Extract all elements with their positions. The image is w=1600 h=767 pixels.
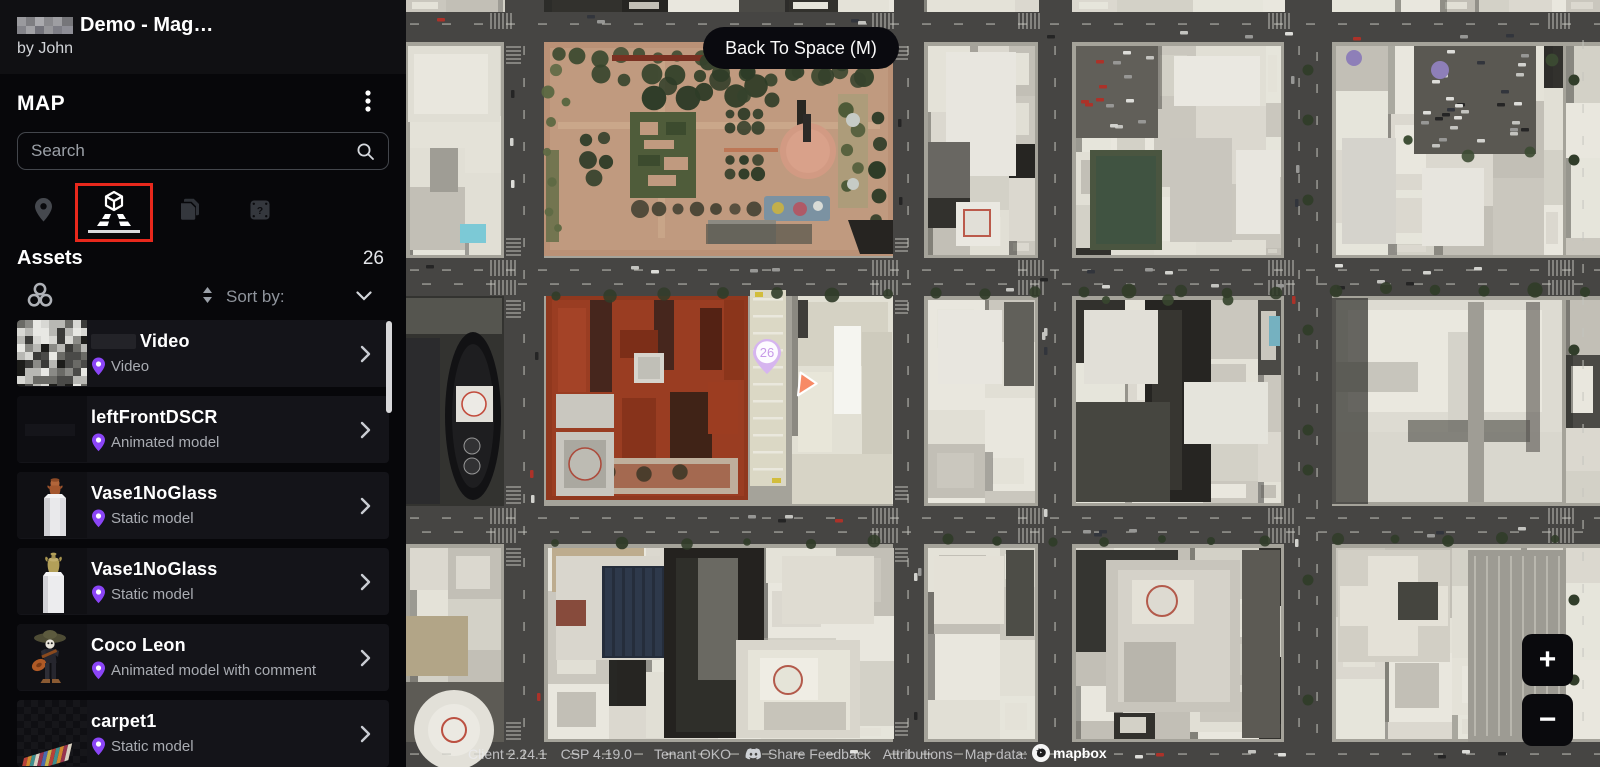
svg-text:?: ?: [257, 206, 263, 217]
svg-text:mapbox: mapbox: [1053, 745, 1107, 761]
svg-text:26: 26: [760, 345, 774, 360]
